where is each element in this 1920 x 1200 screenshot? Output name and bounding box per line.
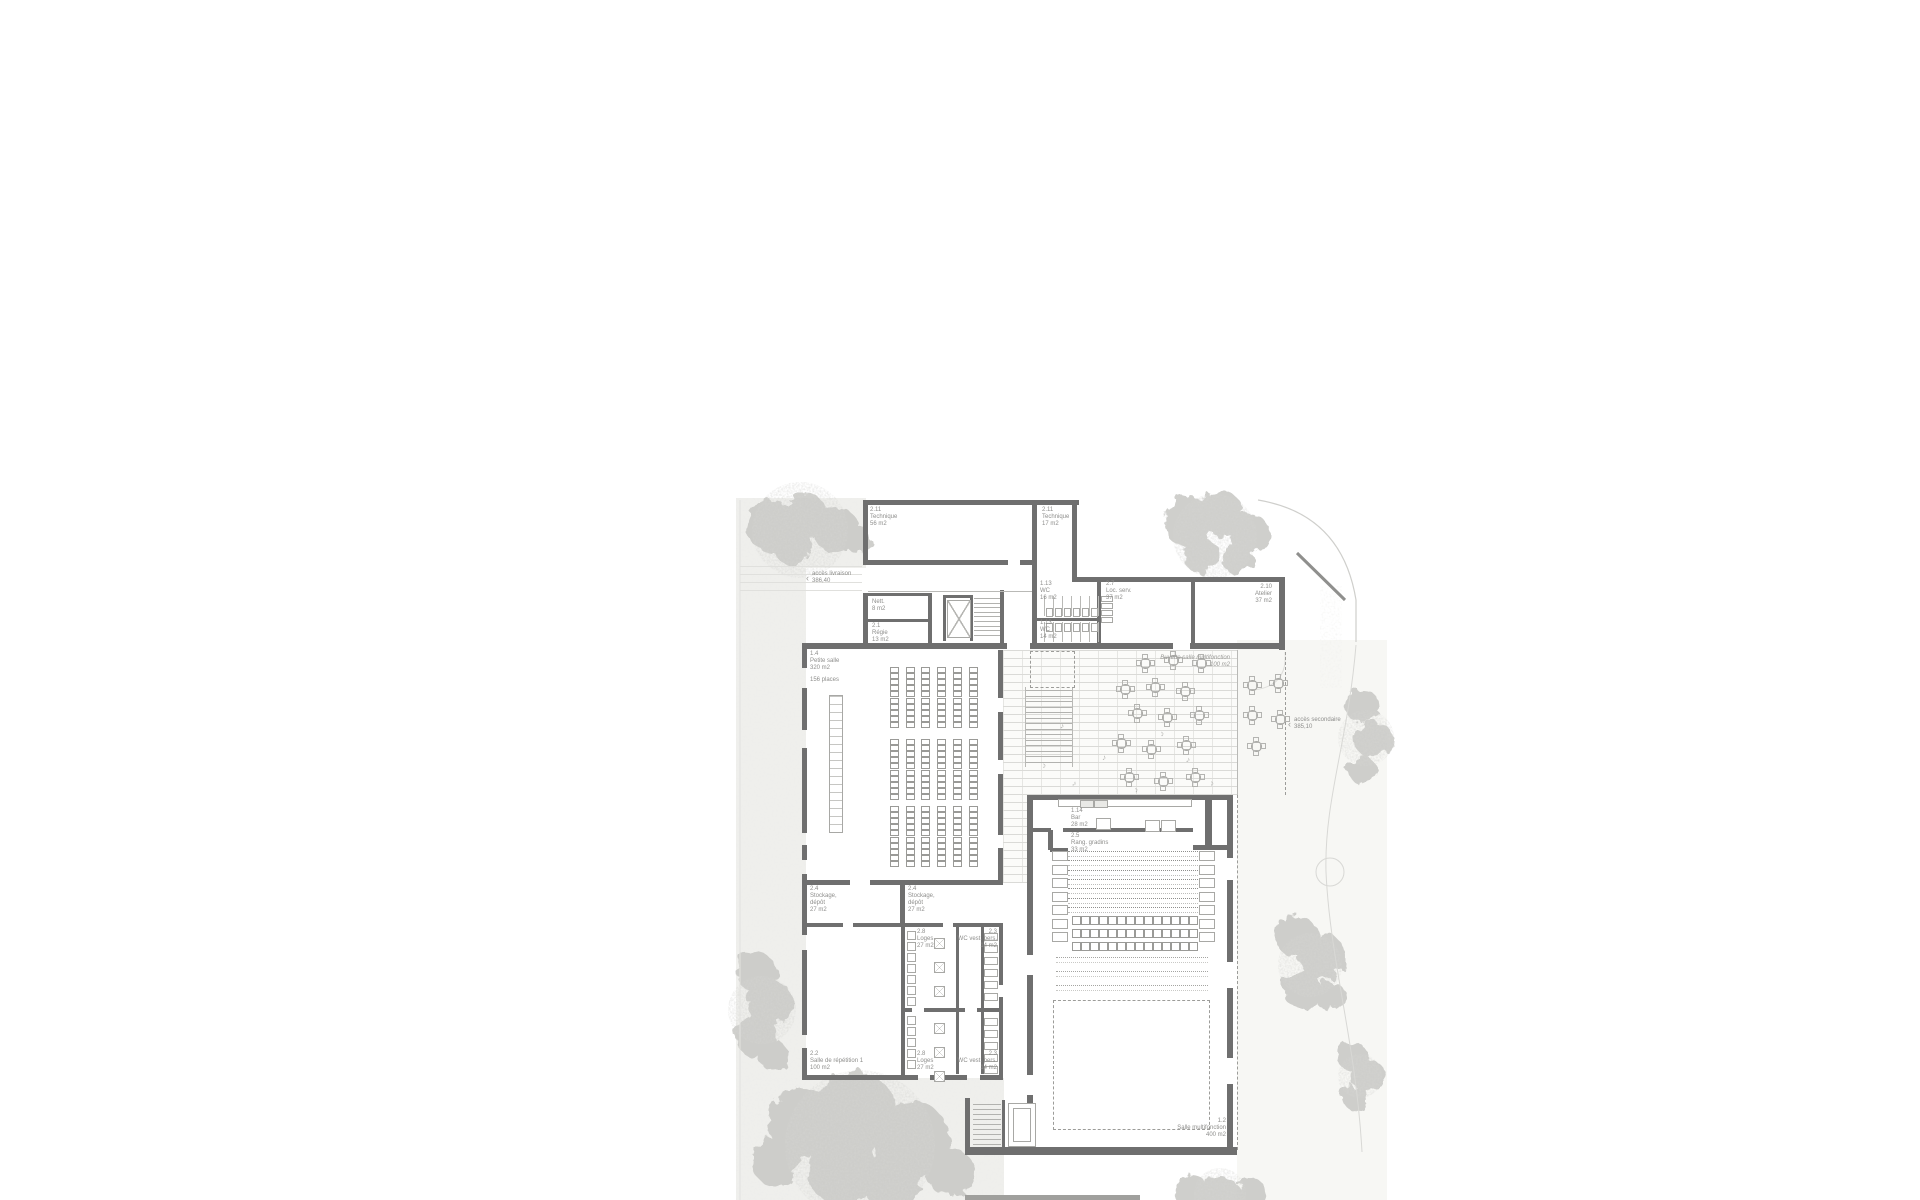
petite-salle-chair [953,770,962,776]
gradin-folded-row [1068,888,1198,894]
petite-salle-chair [953,685,962,691]
room-label-wc-upper: 1.13WC16 m2 [1040,581,1057,602]
petite-salle-chair [890,830,899,836]
hall-chair [1144,942,1153,951]
hall-chair [1108,929,1117,938]
petite-salle-chair [969,861,978,867]
petite-salle-chair [953,794,962,800]
void-dashed-outline [1030,651,1075,688]
petite-salle-chair [937,667,946,673]
hall-dotted-row [1056,971,1208,977]
petite-salle-chair [953,757,962,763]
gradin-side-step [1199,905,1215,915]
petite-salle-chair [969,770,978,776]
wc-toilet [1082,608,1089,617]
terrace-stair-tread [1026,707,1072,708]
wall [1227,988,1233,1058]
gradin-side-step [1199,851,1215,861]
petite-salle-chair [921,710,930,716]
loc-serv-rack [1101,603,1113,609]
hall-chair [1162,942,1171,951]
bar-counter-unit [1080,800,1094,808]
wc-toilet [1055,608,1062,617]
wc-toilet [1046,608,1053,617]
petite-salle-chair [921,691,930,697]
petite-salle-chair [937,782,946,788]
petite-salle-chair [969,830,978,836]
petite-salle-chair [921,837,930,843]
loc-serv-rack [1101,610,1113,616]
petite-salle-chair [953,739,962,745]
wall [802,845,807,860]
terrace-table [1247,737,1265,755]
gradin-folded-row [1068,907,1198,913]
petite-salle-chair [937,739,946,745]
wc-toilet [1064,608,1071,617]
terrace-table [1116,680,1134,698]
petite-salle-chair [937,685,946,691]
wall [866,593,930,596]
terrace-table [1186,768,1204,786]
petite-salle-chair [906,824,915,830]
hall-chair [1117,929,1126,938]
petite-salle-chair [921,782,930,788]
petite-salle-chair [906,685,915,691]
loge-locker [907,964,916,973]
hall-chair [1117,916,1126,925]
wall [802,885,807,935]
petite-salle-chair [921,739,930,745]
room-label-stockage-a: 2.4Stockage,dépôt27 m2 [810,886,837,914]
arrow-left-icon: ‹ [806,575,809,582]
petite-salle-chair [969,722,978,728]
petite-salle-chair [953,763,962,769]
petite-salle-chair [890,824,899,830]
hall-chair [1180,929,1189,938]
terrace-stair-tread [1026,701,1072,702]
petite-salle-chair [953,716,962,722]
petite-salle-chair [937,763,946,769]
petite-salle-chair [890,751,899,757]
petite-salle-chair [937,788,946,794]
petite-salle-chair [921,751,930,757]
petite-salle-chair [890,794,899,800]
wc-fixture [984,993,998,1001]
room-label-buvette: Buvette salle multifonction100 m2 [1100,655,1230,669]
wc-stall-partition [1071,622,1072,642]
hall-chair [1171,916,1180,925]
petite-salle-chair [890,843,899,849]
wall [1027,975,1033,1075]
wc-toilet [1091,623,1098,632]
stair-tread [974,626,1000,627]
elevator-symbol [947,600,971,638]
terrace-stair-tread [1026,712,1072,713]
terrace-stair-tread [1026,690,1072,691]
hall-chair [1126,929,1135,938]
petite-salle-chair [890,855,899,861]
terrace-table [1112,734,1130,752]
petite-salle-chair [953,830,962,836]
petite-salle-chair [969,716,978,722]
stair-tread [974,616,1000,617]
stair-rail [1072,687,1073,767]
petite-salle-chair [937,745,946,751]
wc-toilet [1073,623,1080,632]
petite-salle-chair [953,673,962,679]
petite-salle-chair [969,843,978,849]
petite-salle-chair [937,812,946,818]
room-label-wc-lower: 1.13WC14 m2 [1040,620,1057,641]
room-label-wc-vest-a: 2.3WC vest. pers.14 m2 [940,929,997,950]
wall [802,923,843,927]
loge-locker [907,953,916,962]
petite-salle-chair [890,722,899,728]
petite-salle-chair [937,770,946,776]
hall-chair [1099,929,1108,938]
petite-salle-chair [937,794,946,800]
petite-salle-chair [969,751,978,757]
petite-salle-chair [953,667,962,673]
gradin-side-step [1052,851,1068,861]
petite-salle-chair [906,679,915,685]
petite-salle-chair [921,812,930,818]
petite-salle-chair [937,849,946,855]
petite-salle-chair [906,673,915,679]
petite-salle-chair [969,739,978,745]
corridor-line [868,591,1032,592]
wc-fixture [984,1042,998,1050]
wall [1279,577,1285,650]
wall [1227,880,1233,962]
wc-stall-partition [1062,622,1063,642]
hall-chair [1189,929,1198,938]
sink-symbol [934,1023,945,1034]
petite-salle-chair [890,716,899,722]
sink-symbol [934,1071,945,1082]
hall-chair [1072,942,1081,951]
wall [965,1147,1237,1155]
petite-salle-chair [937,861,946,867]
petite-salle-chair [890,763,899,769]
room-label-technique-small: 2.11Technique17 m2 [1042,507,1069,528]
room-label-bar: 1.14Bar28 m2 [1071,808,1088,829]
petite-salle-chair [890,770,899,776]
exit-stair-tread [973,1124,1001,1125]
loge-locker [907,942,916,951]
wall [901,927,905,1078]
room-label-technique-large: 2.11Technique56 m2 [870,507,897,528]
wall [802,643,1007,649]
wall [802,880,850,885]
petite-salle-chair [969,849,978,855]
petite-salle-chair [890,849,899,855]
petite-salle-chair [937,710,946,716]
petite-salle-chair [906,843,915,849]
wc-fixture [984,981,998,989]
petite-salle-chair [937,691,946,697]
petite-salle-chair [937,776,946,782]
petite-salle-chair [906,855,915,861]
terrace-table [1177,736,1195,754]
terrace-stair-tread [1026,740,1072,741]
petite-salle-chair [969,710,978,716]
wall [863,500,1079,505]
wall [900,883,905,927]
petite-salle-chair [906,751,915,757]
petite-salle-chair [921,861,930,867]
wall [1000,590,1004,643]
room-label-loges-b: 2.8Loges27 m2 [917,1051,934,1072]
exit-stair-tread [973,1144,1001,1145]
petite-salle-chair [890,673,899,679]
hall-chair [1090,942,1099,951]
gradin-side-step [1052,878,1068,888]
petite-salle-chair [890,812,899,818]
gradin-side-step [1052,892,1068,902]
terrace-table [1120,768,1138,786]
wall [965,1098,970,1152]
petite-salle-chair [937,818,946,824]
petite-salle-chair [890,667,899,673]
petite-salle-chair [969,824,978,830]
petite-salle-chair [937,716,946,722]
room-label-nett: Nett.8 m2 [872,599,885,613]
petite-salle-chair [921,704,930,710]
wc-fixture [984,969,998,977]
gradin-folded-row [1068,898,1198,904]
petite-salle-chair [921,824,930,830]
terrace-edge-line [1237,650,1238,795]
room-label-regie: 2.1Régie13 m2 [872,623,889,644]
petite-salle-chair [906,691,915,697]
gradin-side-step [1199,919,1215,929]
petite-salle-chair [953,751,962,757]
hall-floor-dashed-area [1053,1000,1210,1130]
terrace-table [1269,674,1287,692]
petite-salle-chair [921,770,930,776]
annotation-acces-livraison: ‹ accès livraison386,40 [806,571,851,585]
petite-salle-chair [969,667,978,673]
gradin-side-step [1199,865,1215,875]
petite-salle-chair [969,812,978,818]
petite-salle-chair [953,691,962,697]
petite-salle-chair [906,739,915,745]
petite-salle-chair [890,704,899,710]
loge-locker [907,1027,916,1036]
hall-chair [1090,916,1099,925]
wall [953,923,1003,927]
gradin-folded-row [1068,879,1198,885]
hall-chair [1135,916,1144,925]
terrace-stair-tread [1026,756,1072,757]
loge-locker [907,997,916,1006]
music-note-icon: ♪ [1059,721,1071,733]
petite-salle-chair [906,667,915,673]
terrace-table [1128,704,1146,722]
petite-salle-chair [921,757,930,763]
annotation-acces-secondaire: ‹ accès secondaire385,10 [1288,717,1341,731]
floor-plan-canvas: ♪♪♪♪♪♪♪♪ 2.11Technique56 m2 2.11Techniqu… [0,0,1920,1200]
hall-chair [1162,916,1171,925]
petite-salle-chair [890,745,899,751]
petite-salle-chair [953,812,962,818]
gradin-folded-row [1068,860,1198,866]
wall [802,1075,918,1080]
hall-chair [1162,929,1171,938]
petite-salle-chair [953,679,962,685]
petite-salle-chair [921,667,930,673]
petite-salle-chair [906,782,915,788]
petite-salle-chair [890,837,899,843]
hall-dotted-row [1056,957,1208,963]
wall [863,560,1008,565]
wall [802,950,807,1035]
petite-salle-chair [921,843,930,849]
wall [1027,795,1033,955]
hall-chair [1153,929,1162,938]
hall-chair [1072,916,1081,925]
petite-salle-chair [906,710,915,716]
loge-locker [907,1049,916,1058]
wall [905,1008,912,1012]
loge-locker [907,1016,916,1025]
wc-fixture [984,957,998,965]
canopy-dashed-line-lower [1237,795,1238,1150]
petite-salle-chair [969,757,978,763]
exit-stair-tread [973,1119,1001,1120]
loge-locker [907,975,916,984]
petite-salle-chair [906,757,915,763]
petite-salle-chair [921,806,930,812]
hall-chair [1081,942,1090,951]
petite-salle-chair [969,685,978,691]
petite-salle-chair [937,757,946,763]
exit-stair-tread [973,1109,1001,1110]
petite-salle-chair [890,757,899,763]
wall [1002,1100,1005,1147]
hall-chair [1099,942,1108,951]
wall [999,997,1003,1078]
bar-table [1145,820,1160,832]
loge-locker [907,986,916,995]
petite-salle-chair [969,818,978,824]
hall-chair [1117,942,1126,951]
hall-chair [1099,916,1108,925]
petite-salle-chair [906,716,915,722]
terrace-table [1243,676,1261,694]
wc-stall-partition [1098,596,1099,616]
wc-fixture [984,1018,998,1026]
hall-chair [1081,929,1090,938]
petite-salle-chair [953,861,962,867]
wall [998,650,1003,698]
loge-locker [907,1038,916,1047]
petite-salle-chair [937,679,946,685]
bar-counter [1058,799,1192,807]
hall-chair [1144,929,1153,938]
petite-salle-chair [921,679,930,685]
terrace-stair-tread [1026,734,1072,735]
wall [998,712,1003,760]
terrace-table [1158,708,1176,726]
petite-salle-chair [937,751,946,757]
stair-tread [974,635,1000,636]
petite-salle-chair [921,716,930,722]
walkway-line [740,590,862,591]
petite-salle-chair [969,704,978,710]
petite-salle-chair [937,843,946,849]
arrow-left-icon: ‹ [1288,721,1291,728]
wall [863,500,868,565]
petite-salle-chair [953,806,962,812]
gradin-side-step [1052,905,1068,915]
petite-salle-chair [969,837,978,843]
loge-locker [907,1060,916,1069]
exit-stair-tread [973,1139,1001,1140]
wall [998,795,1003,835]
terrace-table [1154,772,1172,790]
wc-stall-partition [1089,622,1090,642]
wall [863,593,868,643]
wc-fixture [984,1030,998,1038]
petite-salle-chair [906,763,915,769]
petite-salle-chair [969,691,978,697]
room-label-loges-a: 2.8Loges27 m2 [917,929,934,950]
gradin-side-step [1052,865,1068,875]
hall-chair [1189,942,1198,951]
petite-salle-chair [969,776,978,782]
petite-salle-chair [906,770,915,776]
petite-salle-chair [906,794,915,800]
petite-salle-chair [921,849,930,855]
petite-salle-chair [906,812,915,818]
room-label-atelier: 2.10Atelier37 m2 [1200,584,1272,605]
stair-tread [974,598,1000,599]
terrace-table [1142,740,1160,758]
stair-tread [974,630,1000,631]
room-label-multifonction: 1.2Salle multifonction400 m2 [1130,1118,1226,1139]
petite-salle-chair [969,673,978,679]
petite-salle-chair [906,837,915,843]
site-wall-bottom [965,1195,1140,1200]
petite-salle-chair [969,698,978,704]
petite-salle-chair [937,855,946,861]
petite-salle-chair [937,722,946,728]
petite-salle-chair [937,837,946,843]
wall [943,595,973,598]
petite-salle-chair [921,776,930,782]
gradin-side-step [1199,878,1215,888]
wall [1030,643,1173,649]
gradin-side-step [1199,932,1215,942]
wall [998,774,1003,795]
petite-salle-chair [890,818,899,824]
wc-stall-partition [1098,622,1099,642]
petite-salle-chair [969,806,978,812]
wall [1072,503,1077,582]
room-label-rang-gradins: 2.5Rang. gradins33 m2 [1071,833,1108,854]
wc-toilet [1091,608,1098,617]
hall-dotted-row [1056,985,1208,991]
shaft-inner [1013,1108,1031,1142]
stair-tread [974,607,1000,608]
hall-chair [1171,942,1180,951]
petite-salle-chair [921,855,930,861]
petite-salle-chair [906,849,915,855]
hall-chair [1126,916,1135,925]
hall-chair [1180,942,1189,951]
